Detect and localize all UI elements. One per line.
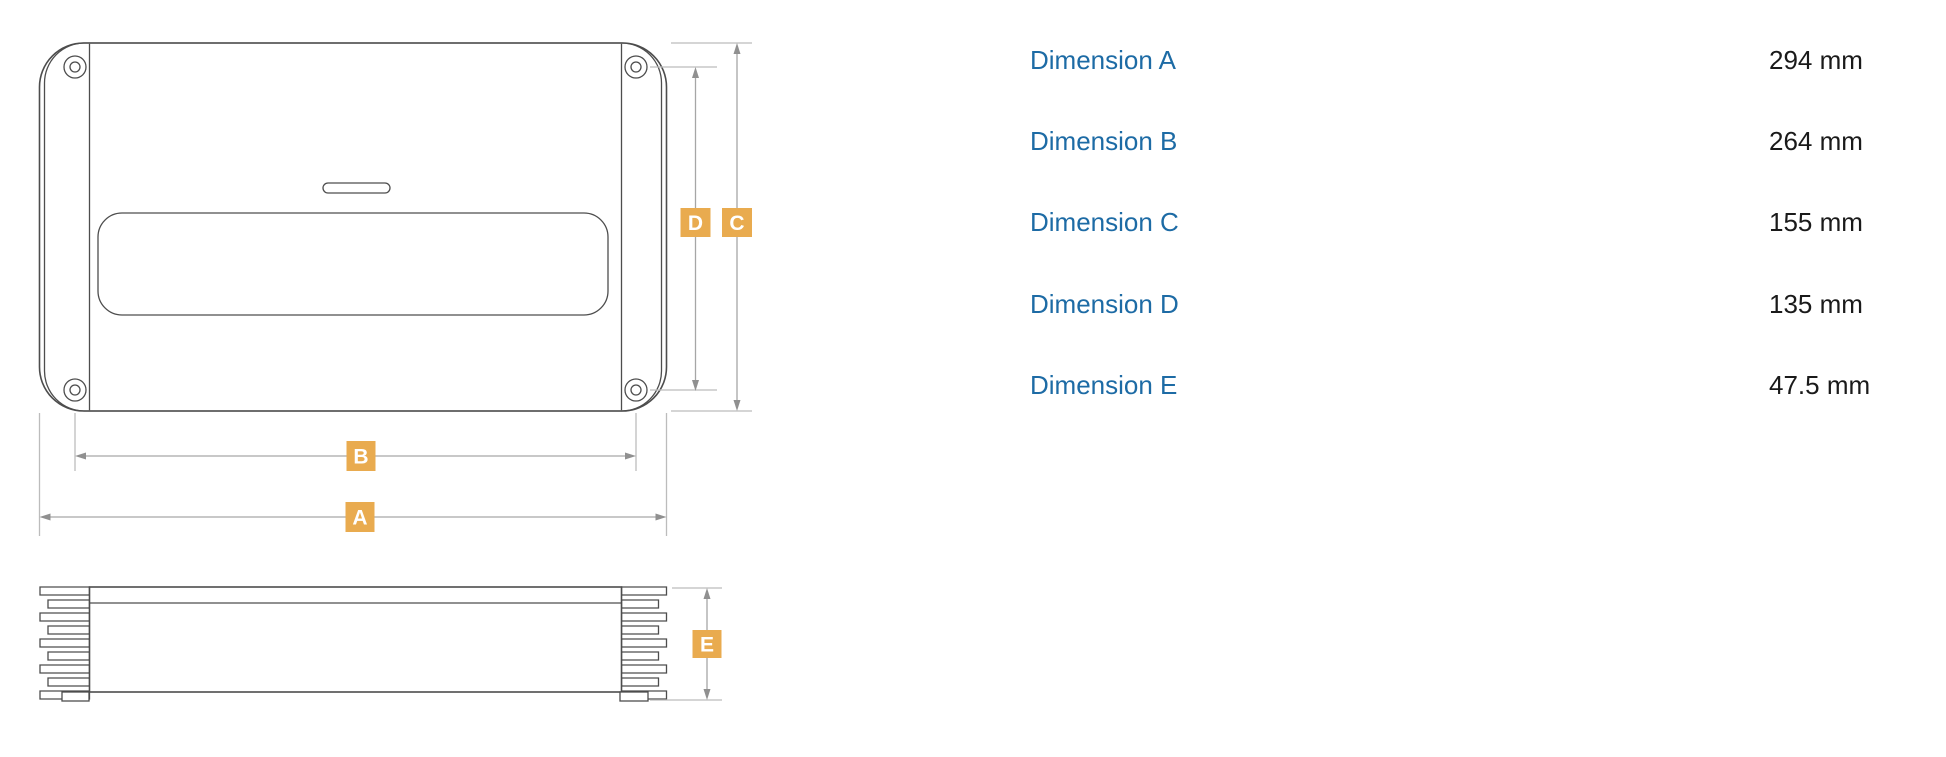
dimension-row: Dimension B 264 mm [1030,116,1910,166]
dimension-label: Dimension E [1030,370,1769,401]
dimension-value: 155 mm [1769,207,1863,238]
side-foot-right [620,692,648,701]
marker-letter-d: D [688,212,703,235]
dimension-diagram: D C B A E [0,0,790,757]
arrow-up-icon [704,588,711,599]
arrow-up-icon [734,43,741,54]
dimension-label: Dimension D [1030,289,1769,320]
arrow-right-icon [625,453,636,460]
chassis-outer-edge [40,43,667,411]
arrow-left-icon [75,453,86,460]
dimension-value: 135 mm [1769,289,1863,320]
heatsink-fins-left [40,587,90,699]
dimension-label: Dimension B [1030,126,1769,157]
dimension-row: Dimension D 135 mm [1030,279,1910,329]
top-view-drawing [40,43,667,411]
marker-letter-a: A [352,507,367,530]
dimensions-table: Dimension A 294 mm Dimension B 264 mm Di… [1030,0,1910,440]
dimension-row: Dimension A 294 mm [1030,35,1910,85]
dimension-value: 47.5 mm [1769,370,1870,401]
dimension-label: Dimension C [1030,207,1769,238]
dimension-row: Dimension C 155 mm [1030,197,1910,247]
marker-letter-e: E [700,634,714,657]
arrow-down-icon [734,400,741,411]
dimension-label: Dimension A [1030,45,1769,76]
side-view-drawing [40,587,667,701]
arrow-up-icon [692,67,699,78]
side-foot-left [62,692,89,701]
arrow-right-icon [656,514,667,521]
arrow-left-icon [40,514,51,521]
dimension-row: Dimension E 47.5 mm [1030,360,1910,410]
heatsink-fins-right [622,587,667,699]
marker-letter-b: B [353,446,368,469]
marker-letter-c: C [729,212,744,235]
dimension-value: 294 mm [1769,45,1863,76]
product-dimensions-page: D C B A E Dimension A 294 mm Dimension B… [0,0,1946,757]
arrow-down-icon [704,689,711,700]
dimension-value: 264 mm [1769,126,1863,157]
